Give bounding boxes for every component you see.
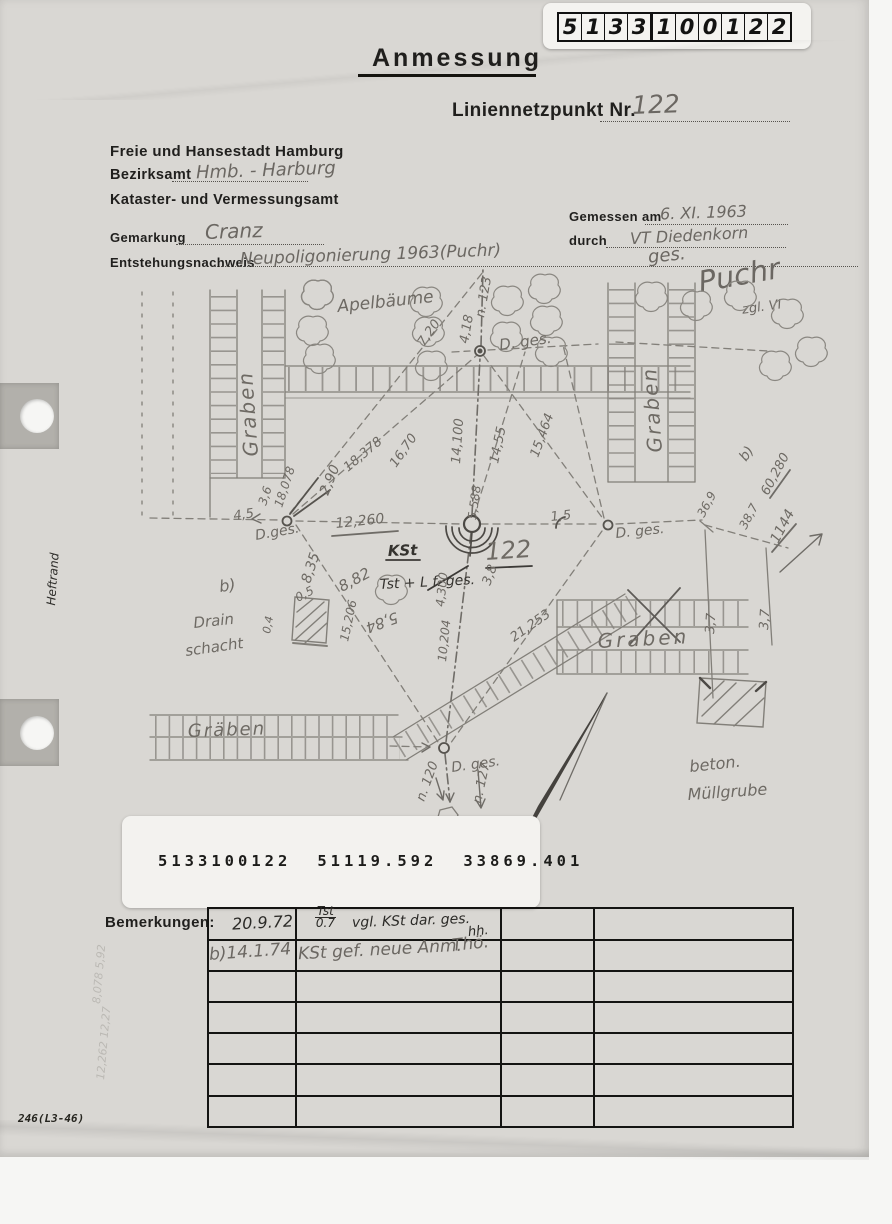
document-number-sticker: 5 1 3 3 1 0 0 1 2 2 bbox=[543, 3, 811, 49]
table-row-line bbox=[209, 1032, 792, 1034]
digit-box: 1 bbox=[651, 14, 676, 40]
digit-box: 1 bbox=[582, 14, 605, 40]
gemarkung-value: Cranz bbox=[205, 218, 263, 244]
gemarkung-label: Gemarkung bbox=[110, 230, 186, 245]
digit-box: 3 bbox=[628, 14, 651, 40]
table-column-line bbox=[500, 909, 502, 1126]
digit-box: 1 bbox=[722, 14, 745, 40]
table-row-line bbox=[209, 970, 792, 972]
remark-row1-fraction: Tst0.7 bbox=[315, 906, 336, 930]
bezirksamt-line bbox=[172, 181, 308, 182]
document-number-grid: 5 1 3 3 1 0 0 1 2 2 bbox=[557, 12, 792, 42]
point-number-value: 122 bbox=[632, 89, 681, 120]
digit-box: 2 bbox=[768, 14, 790, 40]
table-column-line bbox=[295, 909, 297, 1126]
table-row-line bbox=[209, 1095, 792, 1097]
gemarkung-line bbox=[176, 244, 324, 245]
agency-line1: Freie und Hansestadt Hamburg bbox=[110, 143, 344, 160]
sticker-point-id: 5133100122 bbox=[158, 852, 291, 870]
gemessen-label: Gemessen am bbox=[569, 209, 662, 224]
agency-line3: Kataster- und Vermessungsamt bbox=[110, 192, 339, 208]
remark-row1-date: 20.9.72 bbox=[232, 911, 294, 933]
coordinate-sticker: 5133100122 51119.592 33869.401 bbox=[122, 816, 540, 908]
page-title: Anmessung bbox=[372, 44, 542, 73]
digit-box: 2 bbox=[745, 14, 768, 40]
punch-hole-top bbox=[20, 399, 54, 433]
form-number: 246(L3-46) bbox=[18, 1112, 84, 1125]
point-number-label: Liniennetzpunkt Nr. bbox=[452, 100, 636, 122]
fraction-bottom: 0.7 bbox=[316, 916, 335, 930]
table-row-line bbox=[209, 939, 792, 941]
scanned-document-page: Heftrand 5 1 3 3 1 0 0 1 2 2 Anmessung L… bbox=[0, 0, 892, 1224]
digit-box: 0 bbox=[676, 14, 699, 40]
bemerkungen-label: Bemerkungen: bbox=[105, 914, 215, 931]
title-underline bbox=[358, 74, 536, 77]
table-column-line bbox=[593, 909, 595, 1126]
table-row-line bbox=[209, 1001, 792, 1003]
table-row-line bbox=[209, 1063, 792, 1065]
digit-box: 0 bbox=[699, 14, 722, 40]
sticker-coord-x: 51119.592 bbox=[317, 852, 437, 870]
gemessen-value: 6. XI. 1963 bbox=[660, 201, 748, 223]
punch-hole-bottom bbox=[20, 716, 54, 750]
entstehung-label: Entstehungsnachweis bbox=[110, 255, 255, 270]
sticker-coord-y: 33869.401 bbox=[463, 852, 583, 870]
remark-row2-initials: Thö. bbox=[451, 932, 490, 956]
point-number-line bbox=[600, 121, 790, 122]
bemerkungen-table bbox=[207, 907, 794, 1128]
durch-line bbox=[606, 247, 786, 248]
digit-box: 3 bbox=[605, 14, 628, 40]
durch-label: durch bbox=[569, 233, 607, 248]
digit-box: 5 bbox=[559, 14, 582, 40]
signature-ges: ges. bbox=[647, 243, 687, 268]
